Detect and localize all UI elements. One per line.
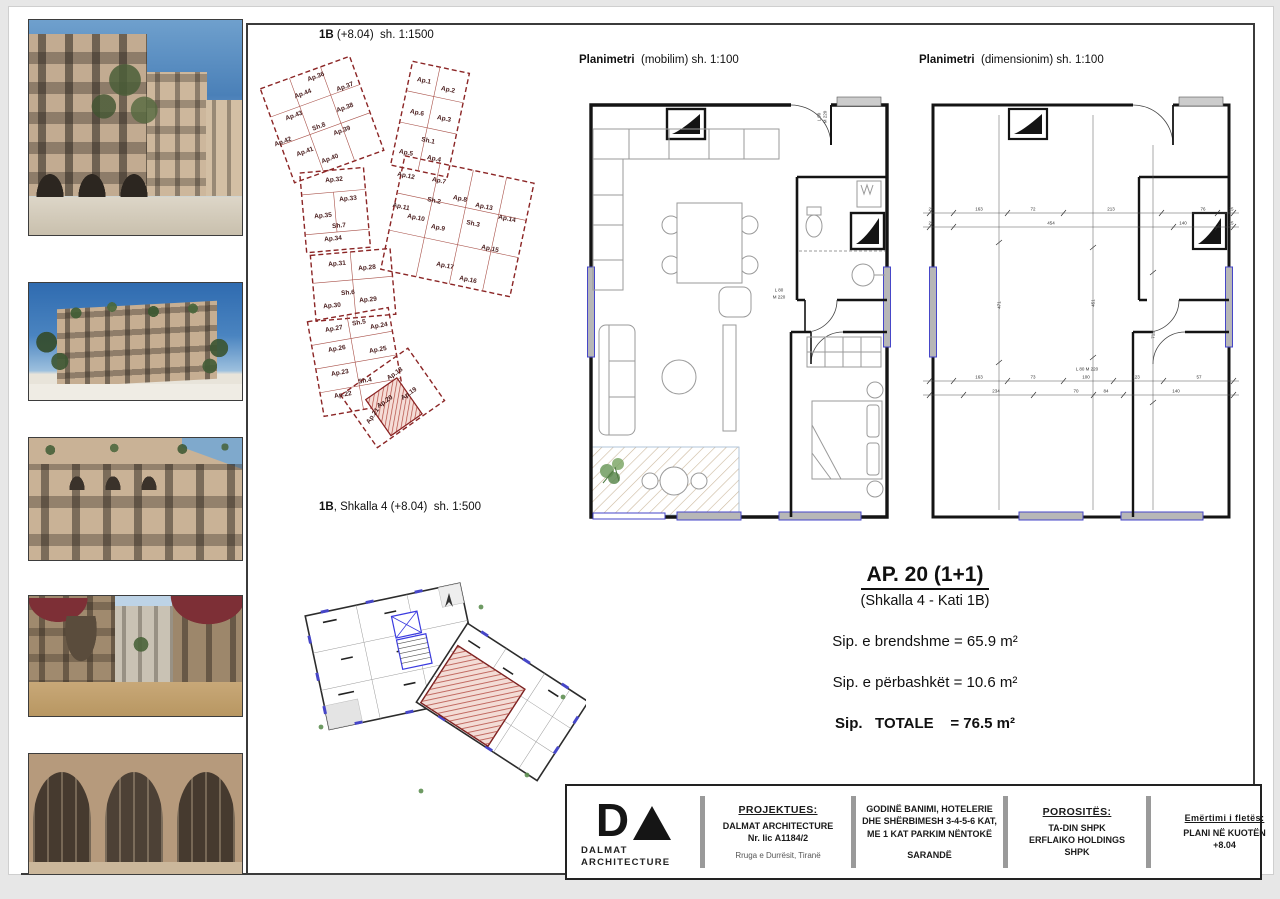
unit-label: Ap.23 <box>331 368 350 378</box>
unit-label: Ap.43 <box>284 110 303 123</box>
logo-cell: D DALMAT ARCHITECTURE <box>567 786 700 878</box>
door-size-label: L 90 <box>817 113 822 122</box>
dimension-value: 25 <box>1228 221 1233 226</box>
sheet-name-cell: Emërtimi i fletës: PLANI NË KUOTËN +8.04 <box>1151 786 1280 878</box>
porosites-heading: POROSITËS: <box>1043 806 1112 818</box>
apartment-subtitle: (Shkalla 4 - Kati 1B) <box>765 593 1085 609</box>
project-cell: GODINË BANIMI, HOTELERIE DHE SHËRBIMESH … <box>856 786 1003 878</box>
frame-right-line <box>1253 23 1255 874</box>
render-photo-facade <box>28 437 243 561</box>
unit-label: Ap.44 <box>293 88 312 101</box>
photo-tree <box>77 44 173 164</box>
unit-label: Ap.17 <box>436 261 455 272</box>
dimension-value: 72 <box>1030 207 1035 212</box>
unit-label: Ap.42 <box>273 136 292 149</box>
brand-line-1: DALMAT <box>581 845 670 857</box>
unit-label: Ap.39 <box>332 125 351 138</box>
sheet-heading: Emërtimi i fletës: <box>1185 813 1265 823</box>
project-description: GODINË BANIMI, HOTELERIE DHE SHËRBIMESH … <box>862 803 997 839</box>
unit-label: Ap.30 <box>323 302 341 311</box>
dimension-value: 712 <box>1151 331 1156 339</box>
door-size-label: L 80 <box>775 288 784 293</box>
unit-label: Ap.18 <box>386 366 405 382</box>
unit-label: Sh.8 <box>311 121 326 132</box>
unit-label: Sh.7 <box>332 222 346 230</box>
photo-arch-passage <box>55 616 107 682</box>
keyplan-drawing <box>301 579 586 814</box>
dimension-value: L 80 M 220 <box>1076 367 1098 372</box>
frame-top-line <box>246 23 1254 25</box>
photo-roof-garden <box>49 295 229 325</box>
plan-mobilim: L 80M 220L 90M 220 <box>579 85 899 525</box>
unit-label: Sh.3 <box>466 219 481 229</box>
dimension-value: 57 <box>1196 375 1201 380</box>
unit-label: Ap.2 <box>440 85 455 95</box>
unit-label: Ap.14 <box>498 214 517 225</box>
door-size-label: M 220 <box>773 295 786 300</box>
unit-label: Ap.26 <box>328 344 347 354</box>
unit-label: Ap.31 <box>328 260 346 269</box>
render-photo-building-complex <box>28 282 243 401</box>
client-3: SHPK <box>1064 846 1089 858</box>
unit-label: Sh.1 <box>421 136 436 146</box>
projektues-heading: PROJEKTUES: <box>738 804 817 816</box>
dimension-value: 140 <box>1172 389 1180 394</box>
client-2: ERFLAIKO HOLDINGS <box>1029 834 1125 846</box>
dimension-value: 73 <box>1030 375 1035 380</box>
logo-triangle-icon <box>633 806 671 840</box>
unit-label: Ap.32 <box>325 176 343 185</box>
unit-label: Ap.22 <box>334 390 353 400</box>
dimension-value: 70 <box>1073 389 1078 394</box>
apartment-summary: AP. 20 (1+1) (Shkalla 4 - Kati 1B) Sip. … <box>765 563 1085 732</box>
logo-brand-text: DALMAT ARCHITECTURE <box>581 845 670 869</box>
unit-label: Ap.4 <box>426 154 441 164</box>
photo-tree-left <box>29 323 73 387</box>
dimension-value: 84 <box>1103 389 1108 394</box>
unit-label: Ap.38 <box>335 102 354 115</box>
unit-label: Sh.6 <box>341 289 355 297</box>
area-total: Sip. TOTALE = 76.5 m² <box>765 715 1085 732</box>
unit-label: Ap.11 <box>392 202 410 212</box>
dimension-value: 140 <box>1179 221 1187 226</box>
unit-label: Ap.15 <box>481 244 500 255</box>
photo-arch-3 <box>177 772 235 864</box>
photo-ground <box>29 862 242 874</box>
render-photo-street-awnings <box>28 595 243 717</box>
dimension-value: 213 <box>1107 207 1115 212</box>
photo-tree-right <box>196 327 242 387</box>
dalmat-logo: D <box>596 796 671 840</box>
photo-arch-1 <box>33 772 91 864</box>
dimension-value: 76 <box>1200 207 1205 212</box>
unit-label: Sh.5 <box>352 318 367 327</box>
dimension-value: 451 <box>1091 299 1096 307</box>
dimension-value: 25 <box>1228 207 1233 212</box>
apartment-title: AP. 20 (1+1) <box>861 563 990 590</box>
photo-street-tree <box>123 630 159 666</box>
projektues-cell: PROJEKTUES: DALMAT ARCHITECTURE Nr. lic … <box>705 786 851 878</box>
unit-label: Ap.29 <box>359 296 377 305</box>
render-photo-street-corner <box>28 19 243 236</box>
keyplan-title: 1B, Shkalla 4 (+8.04) sh. 1:500 <box>319 501 481 513</box>
unit-label: Ap.9 <box>430 223 445 233</box>
dimension-value: 25 <box>928 207 933 212</box>
site-plan-unit-labels: Ap.36Ap.37Ap.44Ap.38Ap.43Sh.8Ap.39Ap.42A… <box>251 56 581 456</box>
site-plan: Ap.36Ap.37Ap.44Ap.38Ap.43Sh.8Ap.39Ap.42A… <box>251 56 581 456</box>
paper-sheet: 1B (+8.04) sh. 1:1500 <box>8 6 1274 875</box>
unit-label: Ap.34 <box>324 235 342 244</box>
projektues-name: DALMAT ARCHITECTURE <box>723 820 834 832</box>
dimension-value: 471 <box>997 301 1002 309</box>
unit-label: Sh.2 <box>427 196 442 206</box>
unit-label: Ap.3 <box>436 114 451 124</box>
dimension-labels: 2516372213762525454140251637310012357234… <box>921 85 1246 525</box>
keyplan-500 <box>301 579 586 814</box>
unit-label: Ap.37 <box>335 81 354 94</box>
unit-label: Ap.19 <box>400 386 419 402</box>
unit-label: Ap.33 <box>339 195 357 204</box>
photo-roof-plants <box>29 438 242 458</box>
unit-label: Ap.41 <box>295 146 314 159</box>
unit-label: Ap.8 <box>452 194 467 204</box>
dimension-value: 123 <box>1132 375 1140 380</box>
title-block: D DALMAT ARCHITECTURE PROJEKTUES: DALMAT… <box>565 784 1262 880</box>
photo-plaza-ground <box>29 197 242 235</box>
drawing-sheet-page: 1B (+8.04) sh. 1:1500 <box>0 0 1280 899</box>
dimension-value: 163 <box>975 207 983 212</box>
unit-label: Ap.36 <box>306 71 325 84</box>
dimension-value: 163 <box>975 375 983 380</box>
brand-line-2: ARCHITECTURE <box>581 857 670 869</box>
unit-label: Ap.1 <box>416 76 431 86</box>
door-size-label: M 220 <box>823 111 828 124</box>
dimensionim-title: Planimetri (dimensionim) sh. 1:100 <box>919 54 1104 66</box>
unit-label: Ap.35 <box>314 212 332 221</box>
unit-label: Ap.12 <box>397 171 416 182</box>
unit-label: Ap.7 <box>431 176 446 186</box>
frame-left-separator <box>246 23 248 874</box>
sheet-name-line2: +8.04 <box>1213 839 1236 851</box>
unit-label: Ap.24 <box>370 321 389 331</box>
unit-label: Ap.10 <box>407 213 426 224</box>
photo-awning-right <box>164 596 243 636</box>
client-1: TA-DIN SHPK <box>1048 822 1105 834</box>
unit-label: Ap.40 <box>320 153 339 166</box>
project-city: SARANDË <box>907 849 952 861</box>
plan-dimensionim: 2516372213762525454140251637310012357234… <box>921 85 1246 525</box>
dimension-value: 234 <box>992 389 1000 394</box>
projektues-address: Rruga e Durrësit, Tiranë <box>735 851 820 860</box>
unit-label: Ap.13 <box>475 202 494 213</box>
projektues-license: Nr. lic A1184/2 <box>748 832 808 844</box>
logo-letter: D <box>596 802 629 840</box>
sheet-name-line1: PLANI NË KUOTËN <box>1183 827 1266 839</box>
mobilim-door-labels: L 80M 220L 90M 220 <box>579 85 899 525</box>
unit-label: Ap.16 <box>459 275 478 286</box>
area-internal: Sip. e brendshme = 65.9 m² <box>765 633 1085 650</box>
dimension-value: 100 <box>1082 375 1090 380</box>
porosites-cell: POROSITËS: TA-DIN SHPK ERFLAIKO HOLDINGS… <box>1008 786 1146 878</box>
dimension-value: 25 <box>928 221 933 226</box>
unit-label: Ap.5 <box>398 148 413 158</box>
photo-ground <box>29 384 242 400</box>
area-shared: Sip. e përbashkët = 10.6 m² <box>765 674 1085 691</box>
unit-label: Sh.4 <box>358 376 373 385</box>
photo-arch-2 <box>105 772 163 864</box>
render-photo-storefront-arches <box>28 753 243 875</box>
unit-label: Ap.20 <box>376 394 395 410</box>
site-plan-title: 1B (+8.04) sh. 1:1500 <box>319 29 434 41</box>
photo-street-ground <box>29 682 242 716</box>
unit-label: Ap.6 <box>409 108 424 118</box>
photo-building-right <box>206 100 242 196</box>
unit-label: Ap.27 <box>325 324 344 334</box>
unit-label: Ap.25 <box>369 345 388 355</box>
unit-label: Ap.28 <box>358 264 376 273</box>
mobilim-title: Planimetri (mobilim) sh. 1:100 <box>579 54 739 66</box>
dimension-value: 454 <box>1047 221 1055 226</box>
